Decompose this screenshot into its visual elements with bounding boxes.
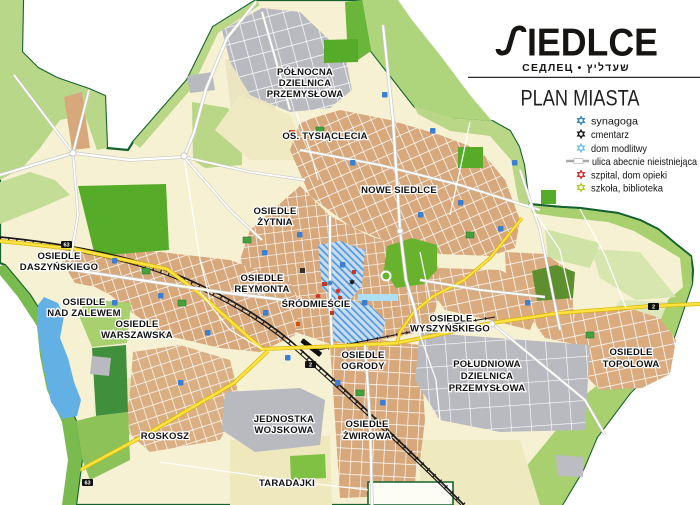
svg-text:OSIEDLE: OSIEDLE [609,347,652,358]
svg-text:WOJSKOWA: WOJSKOWA [254,425,313,436]
svg-text:NAD ZALEWEM: NAD ZALEWEM [47,308,120,319]
svg-text:TARADAJKI: TARADAJKI [259,478,315,489]
svg-text:ŚRÓDMIEŚCIE: ŚRÓDMIEŚCIE [282,298,351,310]
svg-text:2: 2 [309,363,312,369]
svg-text:szpital, dom opieki: szpital, dom opieki [591,170,667,182]
svg-text:POŁUDNIOWA: POŁUDNIOWA [453,359,520,370]
svg-text:OSIEDLE: OSIEDLE [62,297,105,308]
svg-text:OSIEDLE: OSIEDLE [115,319,158,330]
svg-text:dom modlitwy: dom modlitwy [591,143,648,155]
svg-text:2: 2 [652,305,655,311]
svg-text:REYMONTA: REYMONTA [234,284,289,295]
svg-text:NOWE SIEDLCE: NOWE SIEDLCE [361,185,437,196]
svg-text:JEDNOSTKA: JEDNOSTKA [254,414,314,425]
svg-text:szkoła, biblioteka: szkoła, biblioteka [591,183,663,195]
svg-text:63: 63 [84,481,90,487]
svg-text:DASZYŃSKIEGO: DASZYŃSKIEGO [20,262,98,273]
svg-text:DZIELNICA: DZIELNICA [461,371,513,382]
svg-text:OSIEDLE: OSIEDLE [345,419,388,430]
svg-text:ŻYTNIA: ŻYTNIA [257,217,293,228]
svg-text:PRZEMYSŁOWA: PRZEMYSŁOWA [449,383,526,394]
svg-text:OSIEDLE: OSIEDLE [253,206,296,217]
svg-text:63: 63 [63,243,69,249]
svg-text:WYSZYŃSKIEGO: WYSZYŃSKIEGO [410,324,490,335]
svg-text:OSIEDLE: OSIEDLE [240,273,283,284]
svg-text:OS. TYSIĄCLECIA: OS. TYSIĄCLECIA [282,131,367,142]
svg-text:OSIEDLE: OSIEDLE [37,251,80,262]
svg-text:OSIEDLE: OSIEDLE [341,350,384,361]
svg-text:СЕДЛЕЦ • שעדליץ: СЕДЛЕЦ • שעדליץ [522,62,630,74]
svg-text:synagoga: synagoga [591,116,638,128]
svg-text:TOPOLOWA: TOPOLOWA [603,359,660,370]
svg-text:cmentarz: cmentarz [591,129,629,141]
svg-text:PÓŁNOCNA: PÓŁNOCNA [277,66,333,78]
svg-text:DZIELNICA: DZIELNICA [279,78,331,89]
svg-text:PLAN MIASTA: PLAN MIASTA [521,86,640,111]
svg-text:ŻWIROWA: ŻWIROWA [343,431,391,442]
svg-text:IEDLCE: IEDLCE [527,22,658,65]
svg-text:ulica abecnie nieistniejąca: ulica abecnie nieistniejąca [592,156,697,168]
svg-text:PRZEMYSŁOWA: PRZEMYSŁOWA [267,89,344,100]
svg-text:ROSKOSZ: ROSKOSZ [141,431,189,442]
svg-text:OGRODY: OGRODY [341,361,385,372]
svg-text:WARSZAWSKA: WARSZAWSKA [101,330,173,341]
